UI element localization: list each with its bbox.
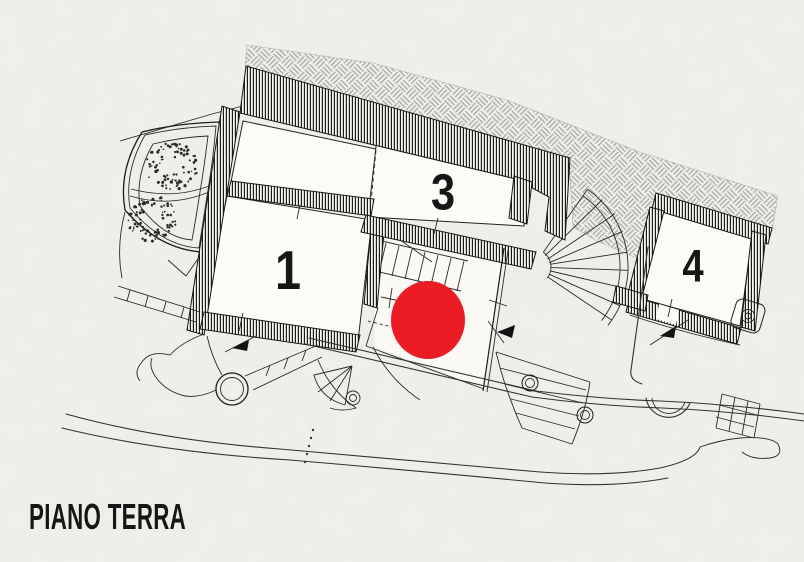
plan-title: PIANO TERRA bbox=[29, 498, 186, 538]
floor-plan-canvas: 1 3 4 PIANO TERRA bbox=[0, 0, 804, 562]
floor-plan-page: 1 3 4 PIANO TERRA bbox=[0, 0, 804, 562]
room-3-label: 3 bbox=[431, 164, 455, 221]
room-1-label: 1 bbox=[275, 239, 301, 300]
room-4-label: 4 bbox=[682, 241, 703, 292]
highlighted-location-marker[interactable] bbox=[391, 281, 465, 359]
